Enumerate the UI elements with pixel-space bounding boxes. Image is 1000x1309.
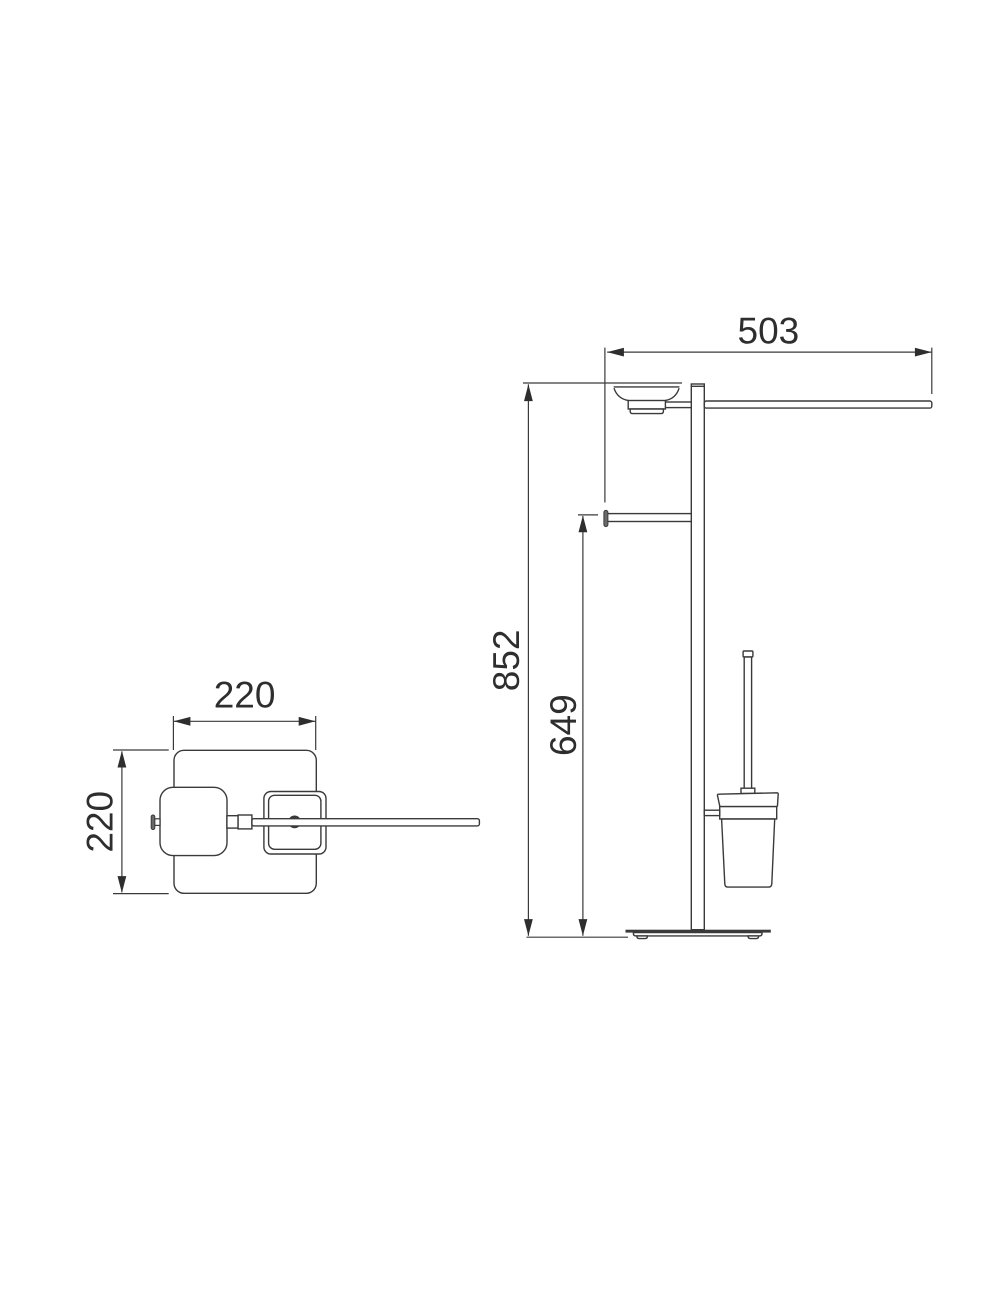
svg-text:220: 220 (80, 791, 121, 853)
svg-text:220: 220 (214, 675, 276, 716)
svg-text:503: 503 (738, 311, 800, 352)
svg-text:649: 649 (543, 694, 584, 756)
svg-text:852: 852 (486, 630, 527, 692)
